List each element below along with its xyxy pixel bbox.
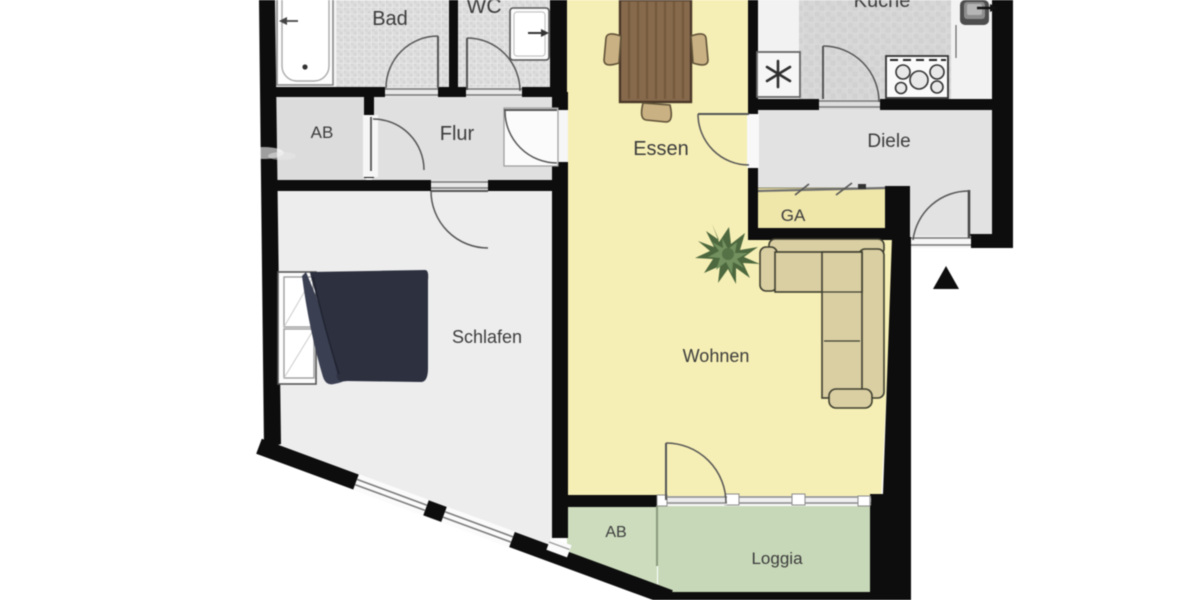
svg-text:Essen: Essen: [633, 138, 689, 160]
svg-text:Bad: Bad: [372, 8, 408, 30]
svg-text:Diele: Diele: [867, 131, 910, 152]
svg-text:AB: AB: [605, 524, 626, 541]
svg-text:Flur: Flur: [440, 123, 475, 145]
svg-text:AB: AB: [311, 123, 334, 142]
svg-text:Wohnen: Wohnen: [683, 346, 750, 366]
svg-text:Küche: Küche: [854, 0, 911, 12]
svg-text:Loggia: Loggia: [751, 549, 803, 568]
svg-text:Schlafen: Schlafen: [452, 327, 522, 347]
svg-text:GA: GA: [781, 206, 806, 225]
svg-text:WC: WC: [467, 0, 502, 18]
